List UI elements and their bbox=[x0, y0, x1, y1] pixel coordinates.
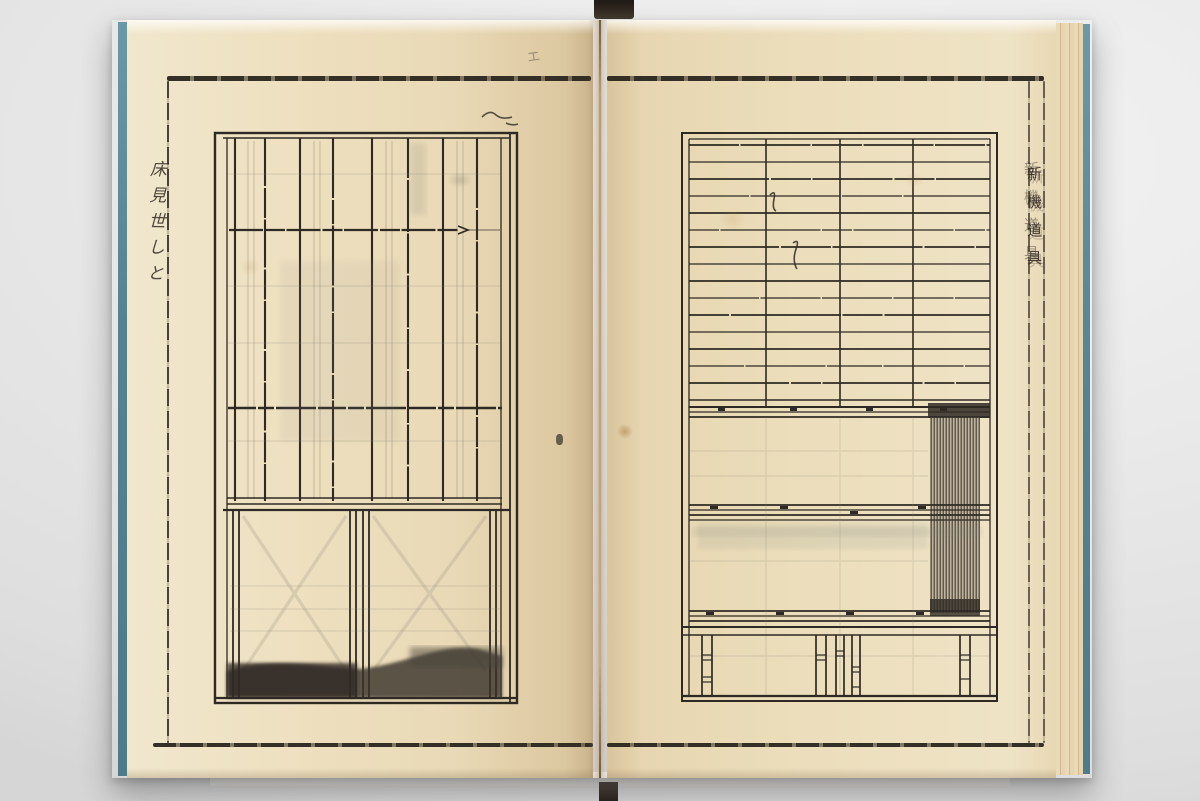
printed-border-bottom-left-page bbox=[153, 743, 593, 747]
pencil-mark: エ bbox=[526, 45, 542, 66]
printed-border-top-right-page bbox=[607, 76, 1044, 81]
handwritten-margin-annotation: 床見世しと bbox=[139, 160, 170, 336]
photo-of-open-woodblock-book: 床見世しと エ bbox=[0, 0, 1200, 801]
smudge-spot bbox=[447, 172, 473, 188]
foxing-spot bbox=[903, 172, 925, 188]
printed-border-top-left-page bbox=[167, 76, 591, 81]
open-book: 床見世しと エ bbox=[112, 20, 1092, 778]
blue-cover-edge-right bbox=[1083, 24, 1090, 774]
running-title-column: 新機道具 bbox=[1027, 166, 1045, 336]
ink-fleck bbox=[556, 434, 563, 445]
printed-border-bottom-right-page bbox=[607, 743, 1044, 747]
gutter-crease bbox=[599, 20, 601, 778]
book-stand-strap-bottom bbox=[599, 782, 618, 801]
right-plate-shelf-elevation-drawing bbox=[678, 111, 1003, 707]
foxing-spot bbox=[719, 208, 747, 230]
right-page: 新機道具 bbox=[607, 20, 1056, 778]
book-stand-strap-top bbox=[594, 0, 634, 19]
foxing-spot bbox=[239, 258, 261, 276]
left-page: 床見世しと エ bbox=[127, 20, 593, 778]
left-plate-lattice-elevation-drawing bbox=[210, 111, 530, 707]
foxing-spot bbox=[617, 424, 633, 439]
page-stack-edge-right bbox=[1056, 23, 1083, 775]
